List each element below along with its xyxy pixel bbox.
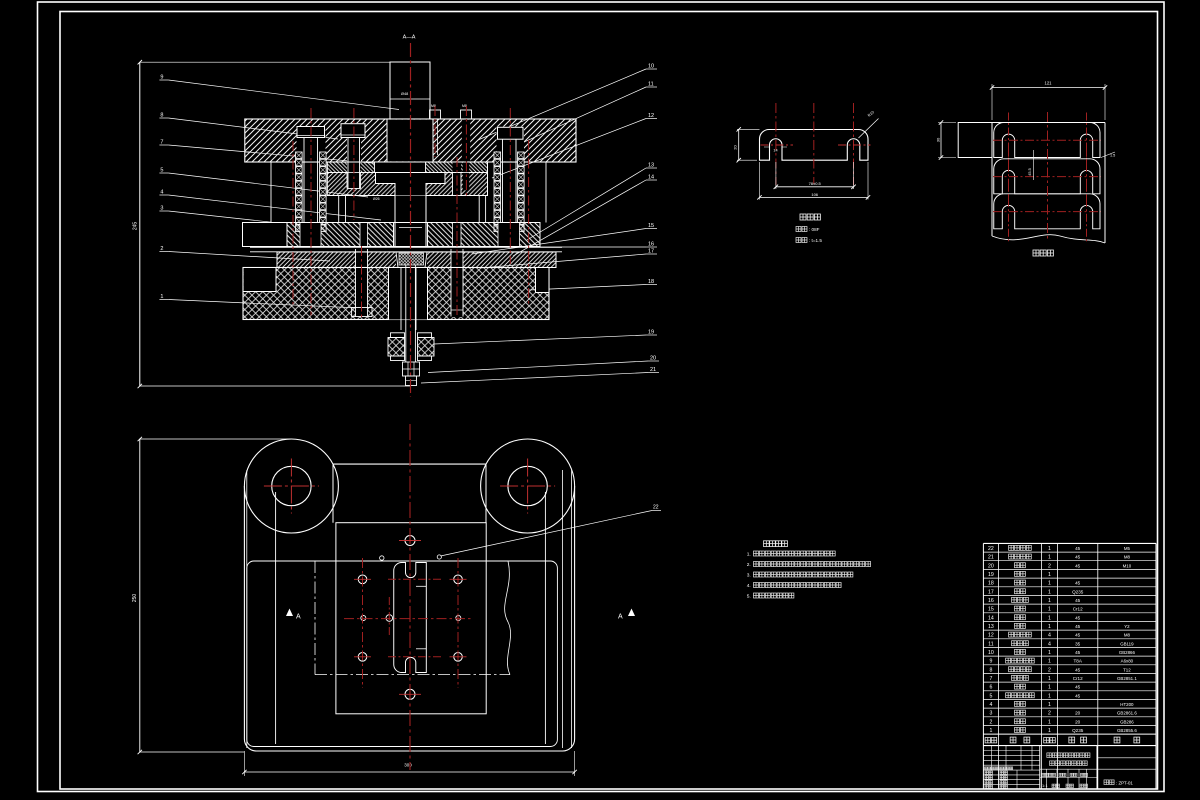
svg-text:1: 1 — [1048, 589, 1051, 595]
svg-text:Y2: Y2 — [1124, 624, 1130, 629]
svg-text:1: 1 — [1048, 728, 1051, 734]
svg-text:45: 45 — [1075, 563, 1081, 568]
svg-text:A: A — [296, 614, 301, 621]
svg-text:2: 2 — [1048, 711, 1051, 717]
svg-text:45: 45 — [1075, 633, 1081, 638]
svg-text:21: 21 — [988, 555, 994, 561]
svg-text:M8: M8 — [1124, 555, 1131, 560]
svg-text:18: 18 — [648, 279, 654, 285]
svg-text:20: 20 — [988, 563, 994, 569]
svg-text:GB2851.1: GB2851.1 — [1117, 676, 1137, 681]
svg-text:GB286: GB286 — [1120, 719, 1134, 724]
svg-text:1: 1 — [1048, 624, 1051, 630]
svg-text:GB2855.6: GB2855.6 — [1117, 728, 1137, 733]
svg-text:9: 9 — [160, 75, 163, 81]
svg-text:10: 10 — [648, 64, 654, 70]
svg-text:M10: M10 — [1123, 563, 1132, 568]
svg-text:10: 10 — [988, 650, 994, 656]
svg-text:14: 14 — [988, 615, 994, 621]
svg-text:19: 19 — [648, 330, 654, 336]
svg-text:1: 1 — [1048, 607, 1051, 613]
svg-text:21: 21 — [650, 367, 656, 373]
svg-text:M8: M8 — [1124, 633, 1131, 638]
svg-text:78±0.5: 78±0.5 — [809, 181, 822, 186]
svg-text:45: 45 — [1075, 685, 1081, 690]
svg-text:6: 6 — [989, 685, 992, 691]
svg-text:4.: 4. — [747, 583, 751, 589]
svg-text:250: 250 — [132, 594, 138, 603]
svg-text:1: 1 — [1048, 555, 1051, 561]
svg-text:GB2866: GB2866 — [1119, 650, 1136, 655]
svg-text:9: 9 — [989, 659, 992, 665]
svg-text:8: 8 — [160, 113, 163, 119]
svg-text:1.: 1. — [747, 552, 751, 558]
svg-text:4: 4 — [1048, 641, 1051, 647]
svg-text:1: 1 — [160, 294, 163, 300]
svg-text:: ZPT-01: : ZPT-01 — [1116, 781, 1133, 786]
svg-text:4: 4 — [1048, 633, 1051, 639]
svg-text:1: 1 — [1048, 702, 1051, 708]
svg-text:5.: 5. — [747, 594, 751, 600]
svg-text:15: 15 — [648, 223, 654, 229]
svg-text:1: 1 — [989, 728, 992, 734]
svg-text:11: 11 — [648, 82, 654, 88]
svg-text:17: 17 — [988, 589, 994, 595]
svg-text:245: 245 — [133, 222, 139, 231]
svg-text:3.: 3. — [747, 573, 751, 579]
svg-text:45: 45 — [1075, 555, 1081, 560]
svg-text:45: 45 — [1075, 650, 1081, 655]
svg-text:GB2861.6: GB2861.6 — [1117, 711, 1137, 716]
svg-text:45: 45 — [1075, 581, 1081, 586]
svg-text:45: 45 — [1075, 615, 1081, 620]
svg-text:20: 20 — [1075, 719, 1081, 724]
svg-text:12: 12 — [648, 113, 654, 119]
svg-text:5: 5 — [160, 168, 163, 174]
svg-text:1: 1 — [1048, 685, 1051, 691]
svg-text:4: 4 — [989, 702, 992, 708]
svg-text:19: 19 — [988, 572, 994, 578]
svg-text:20: 20 — [1075, 711, 1081, 716]
svg-text:30: 30 — [936, 137, 941, 142]
svg-text:14: 14 — [648, 175, 654, 181]
svg-text:T8A: T8A — [1073, 659, 1082, 664]
svg-text:121: 121 — [1045, 81, 1053, 86]
svg-text:2: 2 — [1048, 563, 1051, 569]
svg-text:1: 1 — [1048, 572, 1051, 578]
svg-text:GB119: GB119 — [1120, 641, 1134, 646]
svg-text:T12: T12 — [1123, 667, 1131, 672]
svg-text:1: 1 — [1048, 598, 1051, 604]
svg-text:1: 1 — [1048, 719, 1051, 725]
svg-text:Q235: Q235 — [1072, 728, 1084, 733]
svg-text:5: 5 — [989, 693, 992, 699]
svg-text:20: 20 — [650, 356, 656, 362]
svg-text:A—A: A—A — [403, 35, 416, 41]
svg-text:Q235: Q235 — [1072, 589, 1084, 594]
svg-text:13: 13 — [648, 163, 654, 169]
svg-text:HT200: HT200 — [1120, 702, 1134, 707]
svg-text:Ø26: Ø26 — [373, 197, 380, 201]
svg-text:13: 13 — [988, 624, 994, 630]
svg-text:45: 45 — [1075, 624, 1081, 629]
svg-text:: t=1.5: : t=1.5 — [809, 238, 822, 243]
svg-text:Cr12: Cr12 — [1073, 607, 1083, 612]
svg-text:1: 1 — [1048, 693, 1051, 699]
svg-text:7: 7 — [160, 140, 163, 146]
svg-text:A: A — [618, 614, 623, 621]
svg-text:3: 3 — [989, 711, 992, 717]
svg-text:12: 12 — [988, 633, 994, 639]
svg-text:20: 20 — [733, 145, 738, 150]
svg-text:22: 22 — [988, 546, 994, 552]
svg-text:45: 45 — [1075, 598, 1081, 603]
svg-text:1.5: 1.5 — [1110, 154, 1115, 158]
svg-text:11: 11 — [988, 641, 993, 647]
svg-text:A6x80: A6x80 — [1121, 659, 1134, 664]
svg-text:M5: M5 — [1124, 546, 1131, 551]
svg-text:15: 15 — [988, 607, 994, 613]
svg-text:1: 1 — [1048, 546, 1051, 552]
svg-text:18: 18 — [988, 581, 994, 587]
svg-text:1: 1 — [1048, 581, 1051, 587]
svg-text:1: 1 — [1048, 650, 1051, 656]
svg-text:16: 16 — [988, 598, 994, 604]
svg-text:1: 1 — [1048, 659, 1051, 665]
svg-text:Ø48: Ø48 — [401, 92, 408, 96]
svg-text:1: 1 — [1048, 676, 1051, 682]
svg-text:: 08F: : 08F — [809, 227, 820, 232]
svg-text:35: 35 — [1075, 641, 1081, 646]
svg-text:16: 16 — [648, 242, 654, 248]
svg-text:Cr12: Cr12 — [1073, 676, 1083, 681]
svg-text:300: 300 — [404, 763, 412, 768]
svg-text:14: 14 — [773, 149, 777, 153]
svg-text:2: 2 — [989, 719, 992, 725]
svg-text:7: 7 — [989, 676, 992, 682]
svg-text:22: 22 — [653, 505, 659, 511]
svg-text:45.5: 45.5 — [1028, 168, 1032, 175]
svg-text:8: 8 — [989, 667, 992, 673]
svg-text:1:1: 1:1 — [1042, 783, 1048, 788]
svg-text:1: 1 — [1048, 615, 1051, 621]
svg-text:3: 3 — [160, 206, 163, 212]
svg-text:45: 45 — [1075, 693, 1081, 698]
svg-text:17: 17 — [648, 249, 654, 255]
svg-text:2: 2 — [160, 246, 163, 252]
svg-text:2: 2 — [1048, 667, 1051, 673]
svg-text:106: 106 — [811, 192, 818, 197]
svg-text:45: 45 — [1075, 546, 1081, 551]
svg-text:2.: 2. — [747, 562, 751, 568]
svg-text:4: 4 — [160, 190, 163, 196]
svg-text:45: 45 — [1075, 667, 1081, 672]
